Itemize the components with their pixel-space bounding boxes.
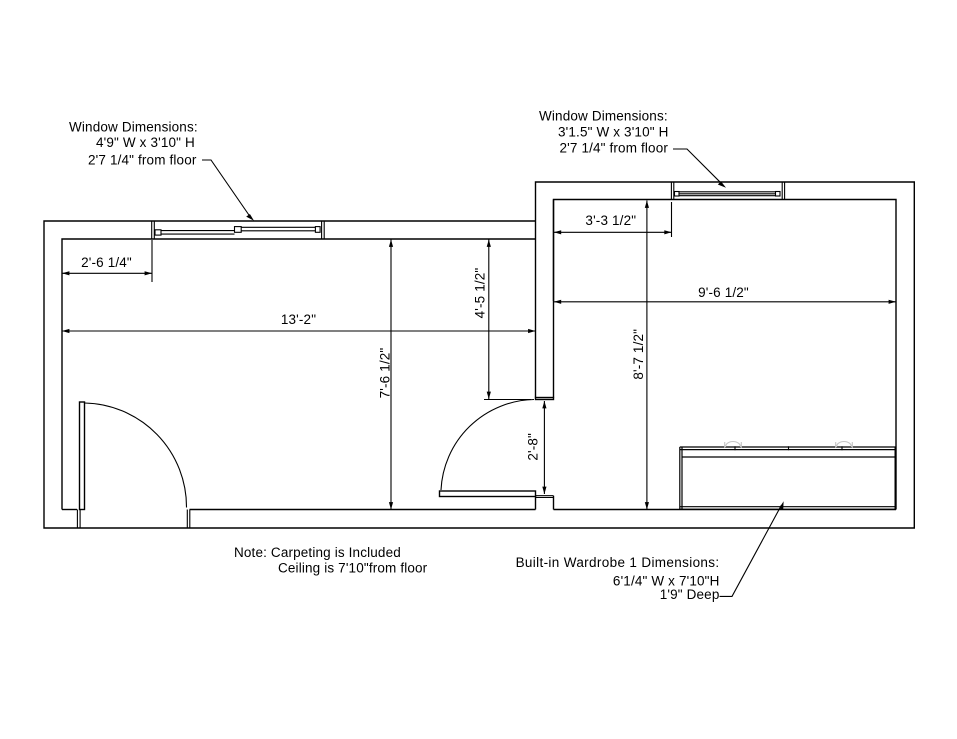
svg-text:2'-6 1/4": 2'-6 1/4" — [81, 255, 132, 270]
svg-text:13'-2": 13'-2" — [281, 312, 316, 327]
svg-text:Note: Carpeting is Included: Note: Carpeting is Included — [234, 545, 401, 560]
svg-text:2'7 1/4" from floor: 2'7 1/4" from floor — [88, 153, 197, 168]
svg-text:2'7 1/4" from floor: 2'7 1/4" from floor — [560, 141, 669, 156]
svg-text:Built-in Wardrobe 1 Dimensions: Built-in Wardrobe 1 Dimensions: — [516, 555, 720, 570]
svg-text:1'9" Deep: 1'9" Deep — [660, 587, 720, 602]
svg-text:2'-8": 2'-8" — [526, 433, 541, 461]
svg-text:Window Dimensions:: Window Dimensions: — [69, 119, 198, 134]
svg-text:4'-5 1/2": 4'-5 1/2" — [473, 268, 488, 319]
svg-text:3'1.5" W x 3'10" H: 3'1.5" W x 3'10" H — [558, 124, 668, 139]
svg-text:Ceiling is 7'10"from floor: Ceiling is 7'10"from floor — [278, 561, 428, 576]
svg-text:3'-3 1/2": 3'-3 1/2" — [585, 213, 636, 228]
svg-text:Window Dimensions:: Window Dimensions: — [539, 108, 668, 123]
svg-text:7'-6 1/2": 7'-6 1/2" — [378, 348, 393, 399]
svg-text:8'-7 1/2": 8'-7 1/2" — [631, 329, 646, 380]
svg-text:9'-6 1/2": 9'-6 1/2" — [698, 285, 749, 300]
svg-text:4'9" W x 3'10" H: 4'9" W x 3'10" H — [96, 135, 195, 150]
